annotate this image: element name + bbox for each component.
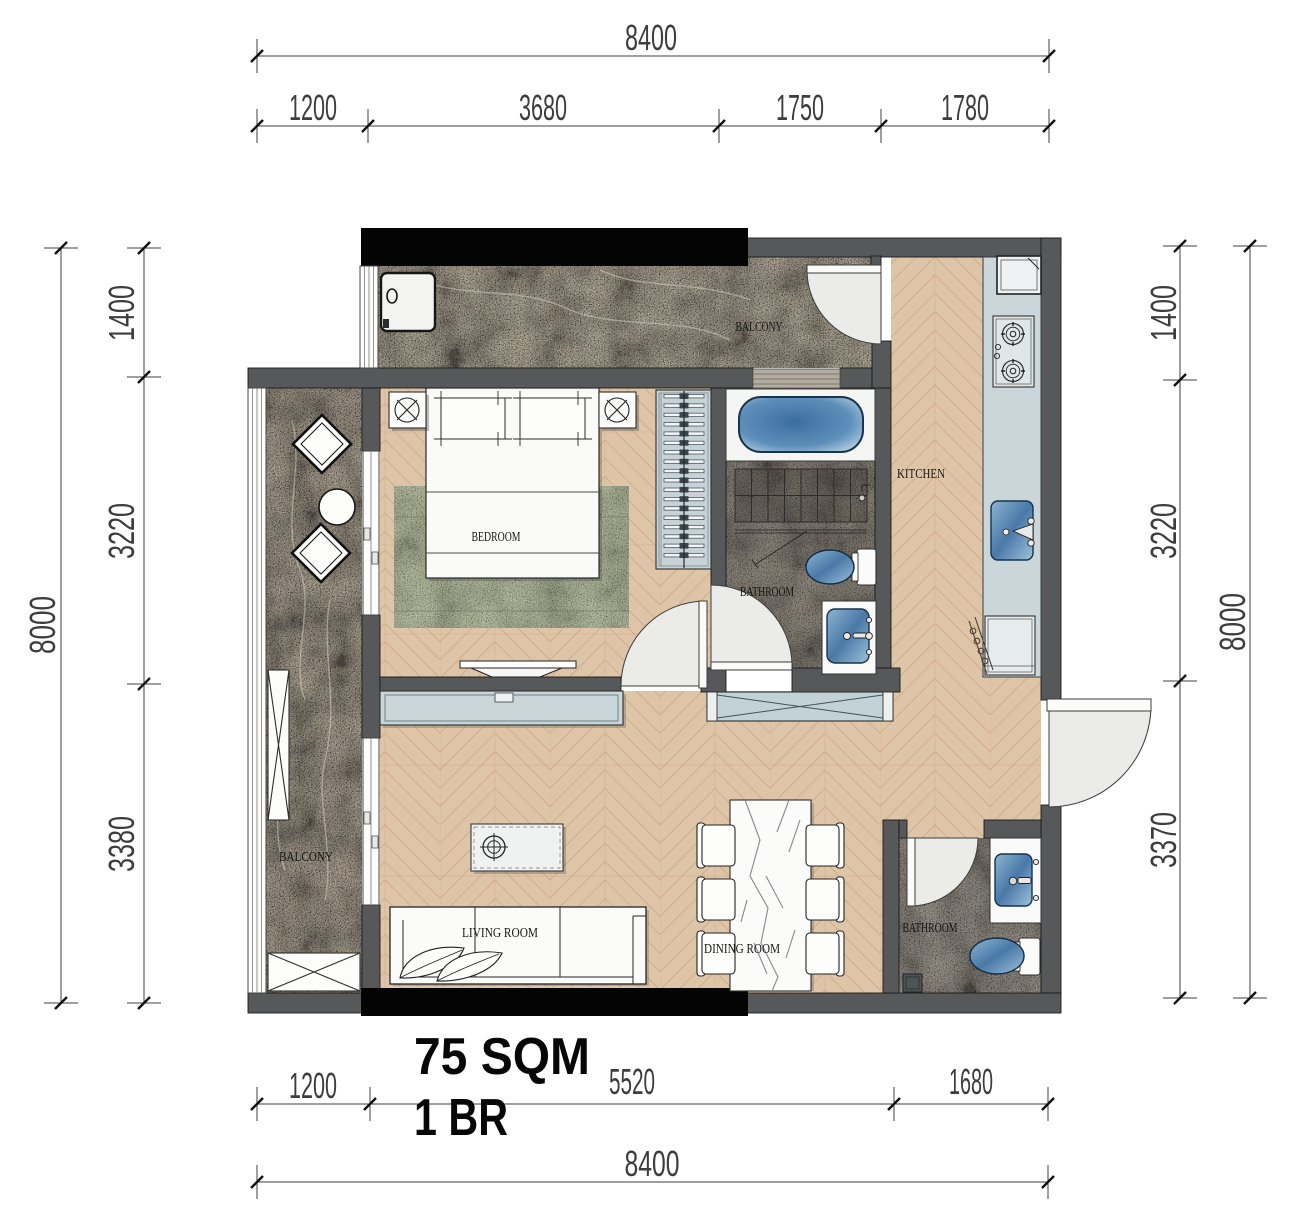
svg-text:LIVING ROOM: LIVING ROOM: [462, 925, 538, 940]
svg-text:8400: 8400: [625, 1143, 680, 1184]
svg-text:75 SQM: 75 SQM: [414, 1028, 590, 1086]
svg-text:1200: 1200: [289, 87, 337, 128]
svg-text:8000: 8000: [22, 596, 63, 654]
svg-text:KITCHEN: KITCHEN: [897, 466, 945, 481]
svg-text:1400: 1400: [1143, 285, 1184, 341]
svg-text:5520: 5520: [609, 1061, 655, 1102]
svg-text:3220: 3220: [1143, 503, 1184, 559]
svg-text:BATHROOM: BATHROOM: [740, 584, 794, 599]
svg-text:1680: 1680: [949, 1061, 993, 1102]
svg-text:BALCONY: BALCONY: [279, 849, 333, 864]
svg-text:BEDROOM: BEDROOM: [472, 529, 521, 544]
svg-text:3220: 3220: [101, 503, 142, 559]
svg-text:1 BR: 1 BR: [414, 1089, 508, 1147]
svg-text:1750: 1750: [776, 87, 824, 128]
svg-text:3380: 3380: [101, 816, 142, 872]
svg-text:8400: 8400: [625, 17, 677, 58]
svg-text:1200: 1200: [289, 1065, 337, 1106]
svg-text:1780: 1780: [941, 87, 989, 128]
svg-text:BATHROOM: BATHROOM: [903, 920, 958, 935]
svg-text:3680: 3680: [519, 87, 567, 128]
svg-text:1400: 1400: [101, 285, 142, 341]
svg-text:8000: 8000: [1212, 593, 1253, 651]
svg-text:3370: 3370: [1143, 812, 1184, 868]
svg-text:DINING ROOM: DINING ROOM: [704, 941, 780, 956]
svg-text:BALCONY: BALCONY: [736, 319, 783, 334]
